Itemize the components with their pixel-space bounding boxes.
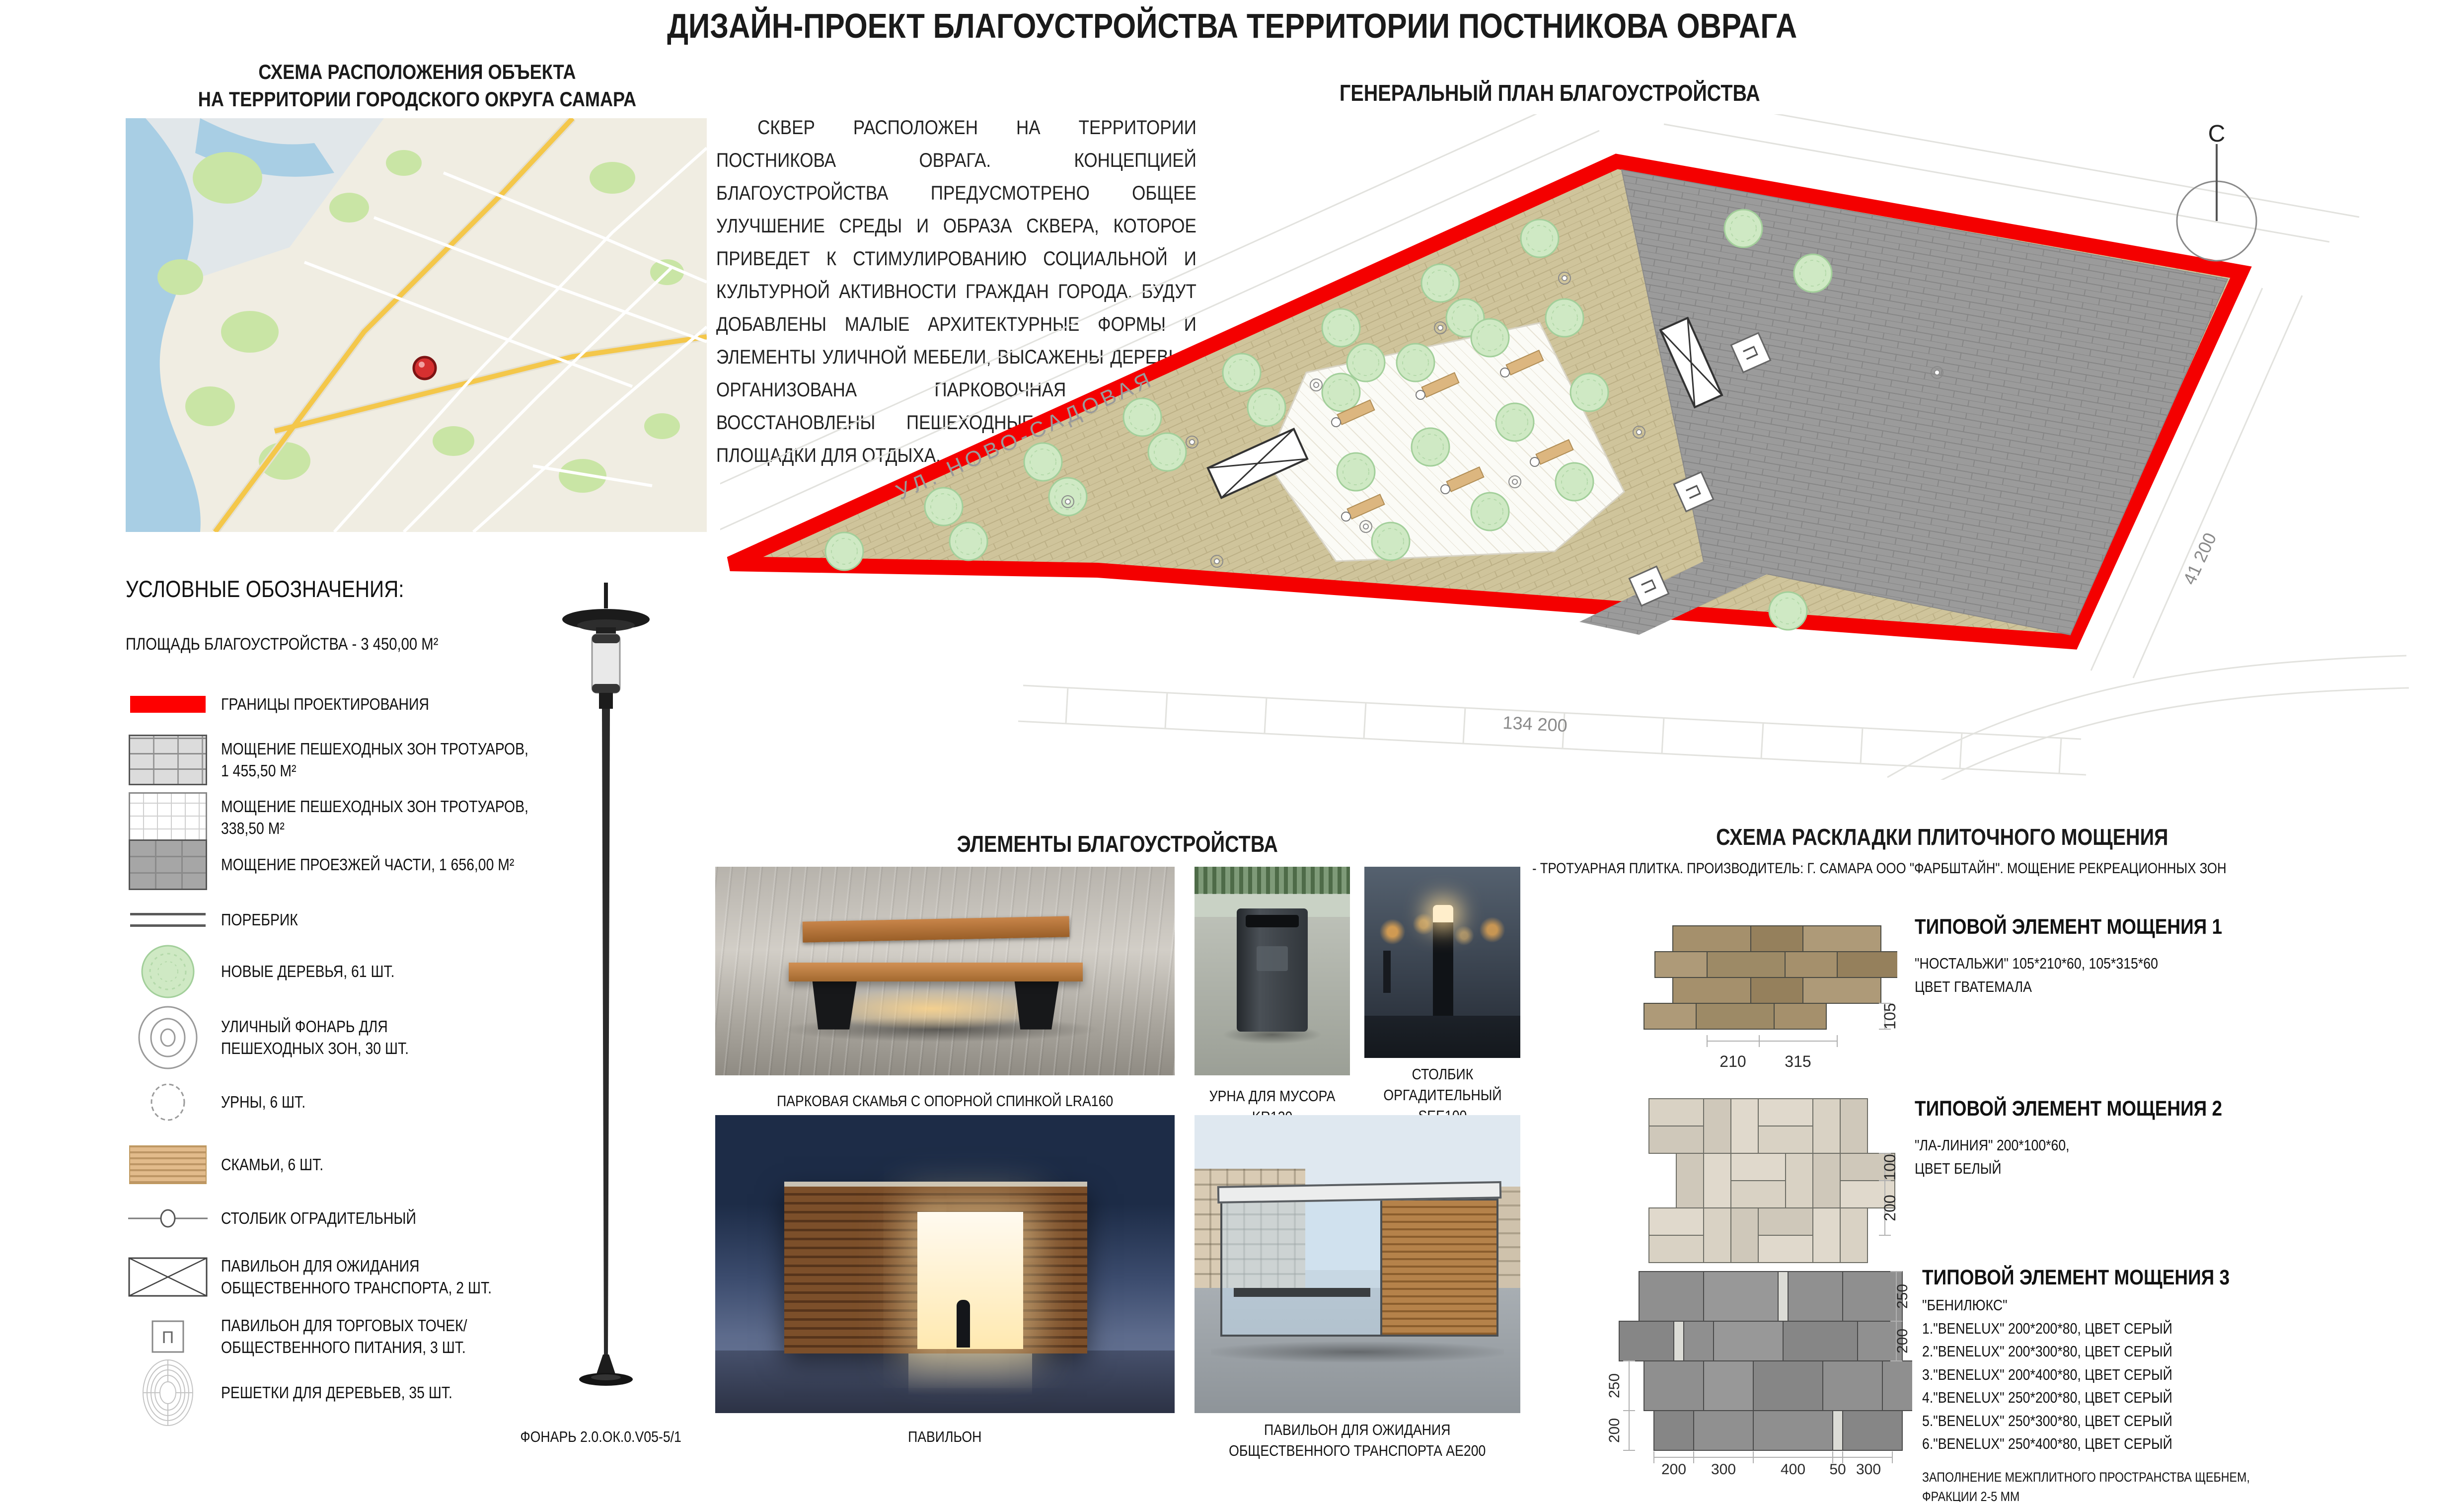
location-marker-highlight <box>419 362 425 368</box>
tree-grate-icon <box>141 1358 195 1427</box>
bench-caption: ПАРКОВАЯ СКАМЬЯ С ОПОРНОЙ СПИНКОЙ LRA160 <box>715 1091 1175 1112</box>
pavilion-light-reflection <box>908 1353 1033 1395</box>
bollard-far-post <box>1383 951 1391 993</box>
shelter-wood-panel <box>1380 1199 1498 1337</box>
tile-diagram-1: 210 315 105 <box>1634 923 1897 1082</box>
svg-text:200: 200 <box>1881 1195 1897 1221</box>
svg-text:400: 400 <box>1781 1461 1805 1478</box>
curb-swatch <box>126 913 210 927</box>
location-marker <box>414 357 436 379</box>
dimension-right: 41 200 <box>2179 529 2221 588</box>
paving-heading: СХЕМА РАСКЛАДКИ ПЛИТОЧНОГО МОЩЕНИЯ <box>1614 824 2270 850</box>
north-label: С <box>2208 121 2226 147</box>
shelter-glass-panel <box>1220 1199 1384 1337</box>
urn-badge <box>1257 946 1288 971</box>
page-title: ДИЗАЙН-ПРОЕКТ БЛАГОУСТРОЙСТВА ТЕРРИТОРИИ… <box>0 6 2464 46</box>
urn-swatch <box>126 1082 210 1122</box>
paving-light-swatch <box>126 735 210 785</box>
legend-heading: УСЛОВНЫЕ ОБОЗНАЧЕНИЯ: <box>126 575 449 602</box>
svg-text:105: 105 <box>1881 1003 1897 1029</box>
svg-text:210: 210 <box>1719 1052 1746 1070</box>
shelter-shadow <box>1211 1342 1504 1362</box>
poster: ДИЗАЙН-ПРОЕКТ БЛАГОУСТРОЙСТВА ТЕРРИТОРИИ… <box>0 0 2464 1502</box>
bench-seat <box>789 963 1083 981</box>
legend-item-tree-grates: РЕШЕТКИ ДЛЯ ДЕРЕВЬЕВ, 35 ШТ. <box>126 1358 598 1427</box>
svg-text:50: 50 <box>1829 1461 1846 1478</box>
lamp-icon <box>136 1005 200 1070</box>
general-plan: П П П УЛ. НОВО-САДОВАЯ 134 200 41 200 С <box>720 114 2409 780</box>
bus-shelter-photo <box>1195 1115 1520 1413</box>
city-map <box>126 118 707 532</box>
bus-pavilion-swatch <box>126 1257 210 1297</box>
shelter-bench <box>1234 1288 1371 1297</box>
urn-slot <box>1246 915 1298 927</box>
legend-item-lamp: УЛИЧНЫЙ ФОНАРЬ ДЛЯ ПЕШЕХОДНЫХ ЗОН, 30 ШТ… <box>126 1003 598 1072</box>
svg-text:300: 300 <box>1856 1461 1881 1478</box>
legend-item-trees: НОВЫЕ ДЕРЕВЬЯ, 61 ШТ. <box>126 937 598 1006</box>
urn-photo <box>1195 867 1350 1075</box>
street-lamp-figure <box>546 579 666 1423</box>
trade-pavilion-swatch: П <box>126 1320 210 1353</box>
dimension-bottom: 134 200 <box>1502 712 1568 736</box>
legend-item-urns: УРНЫ, 6 ШТ. <box>126 1067 598 1137</box>
tile-text-2: ТИПОВОЙ ЭЛЕМЕНТ МОЩЕНИЯ 2 "ЛА-ЛИНИЯ" 200… <box>1915 1097 2441 1180</box>
location-scheme-title: СХЕМА РАСПОЛОЖЕНИЯ ОБЪЕКТА НА ТЕРРИТОРИИ… <box>119 59 715 113</box>
trade-pavilion-icon: П <box>151 1320 184 1353</box>
pavilion-caption: ПАВИЛЬОН <box>715 1427 1175 1447</box>
svg-text:100: 100 <box>1881 1154 1897 1180</box>
pavilion-lit-doorway <box>917 1212 1023 1349</box>
bollard-photo <box>1364 867 1520 1058</box>
bench-backrest <box>802 916 1069 942</box>
svg-text:250: 250 <box>1606 1373 1623 1398</box>
legend-area-total: ПЛОЩАДЬ БЛАГОУСТРОЙСТВА - 3 450,00 М² <box>126 635 489 654</box>
legend-item-bus-pavilion: ПАВИЛЬОН ДЛЯ ОЖИДАНИЯ ОБЩЕСТВЕННОГО ТРАН… <box>126 1242 598 1312</box>
bollard-swatch <box>126 1207 210 1229</box>
lamp-caption: ФОНАРЬ 2.0.ОК.0.V05-5/1 <box>482 1427 720 1447</box>
bollard-light <box>1433 905 1453 922</box>
bollard-ground <box>1364 1016 1520 1058</box>
person-silhouette <box>957 1300 971 1348</box>
tile-text-3: ТИПОВОЙ ЭЛЕМЕНТ МОЩЕНИЯ 3 "БЕНИЛЮКС" 1."… <box>1922 1266 2459 1502</box>
pavilion-photo <box>715 1115 1175 1413</box>
bench-photo <box>715 867 1175 1075</box>
tile-text-1: ТИПОВОЙ ЭЛЕМЕНТ МОЩЕНИЯ 1 "НОСТАЛЬЖИ" 10… <box>1915 915 2441 998</box>
svg-text:315: 315 <box>1785 1052 1811 1070</box>
lamp-symbol-swatch <box>126 1005 210 1070</box>
svg-text:300: 300 <box>1711 1461 1736 1478</box>
tile-diagram-2: 100 200 <box>1634 1093 1897 1264</box>
bench-swatch <box>126 1145 210 1184</box>
boundary-swatch <box>126 696 210 713</box>
tree-icon <box>138 942 198 1001</box>
bollard-icon <box>128 1207 208 1229</box>
bus-pavilion-icon <box>128 1257 208 1297</box>
svg-text:250: 250 <box>1894 1284 1911 1309</box>
svg-text:П: П <box>162 1328 174 1347</box>
general-plan-title: ГЕНЕРАЛЬНЫЙ ПЛАН БЛАГОУСТРОЙСТВА <box>1301 79 1798 106</box>
tree-grate-swatch <box>126 1358 210 1427</box>
pavilion-roof-edge <box>784 1182 1088 1187</box>
bus-shelter-caption: ПАВИЛЬОН ДЛЯ ОЖИДАНИЯ ОБЩЕСТВЕННОГО ТРАН… <box>1195 1420 1520 1461</box>
north-indicator: С <box>2177 121 2256 261</box>
tree-swatch <box>126 942 210 1001</box>
urn-icon <box>148 1082 188 1122</box>
paving-subtitle: - ТРОТУАРНАЯ ПЛИТКА. ПРОИЗВОДИТЕЛЬ: Г. С… <box>1532 860 2441 877</box>
svg-text:200: 200 <box>1606 1418 1623 1443</box>
svg-text:200: 200 <box>1894 1329 1911 1353</box>
svg-text:200: 200 <box>1661 1461 1686 1478</box>
elements-heading: ЭЛЕМЕНТЫ БЛАГОУСТРОЙСТВА <box>715 830 1520 857</box>
paving-dark-swatch <box>126 839 210 890</box>
tile-diagram-3: 200 300 400 50 300 250 200 250 200 <box>1604 1268 1912 1481</box>
